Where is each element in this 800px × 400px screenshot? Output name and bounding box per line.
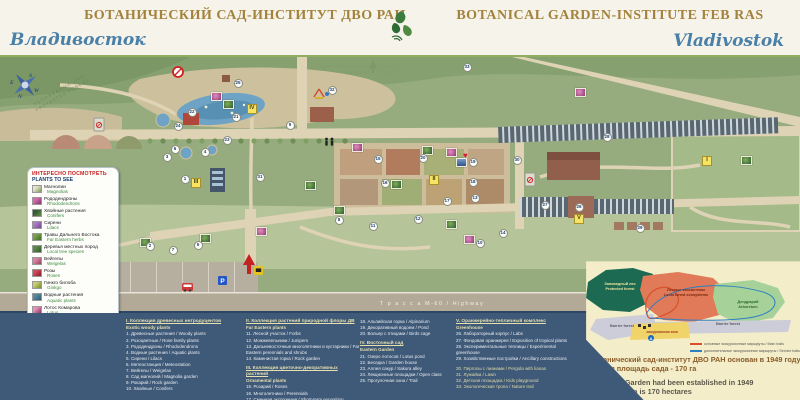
city-script-english: Vladivostok — [673, 31, 784, 51]
legend-header-en: Eastern Garden — [360, 347, 455, 353]
plant-list-item: МагнолииMagnolias — [32, 185, 114, 195]
header: БОТАНИЧЕСКИЙ САД-ИНСТИТУТ ДВО РАН BOTANI… — [0, 0, 800, 57]
brown-building — [310, 107, 334, 122]
service-trail-label: дополнительные экскурсионные маршруты / … — [704, 349, 800, 353]
plant-photo-thumbnail — [32, 293, 42, 301]
legend-column-4: V. Оранжерейно-тепличный комплексGreenho… — [456, 319, 578, 390]
legend-section-header: III. Коллекция цветочно-декоративных рас… — [246, 366, 360, 384]
plant-photo-thumbnail — [32, 257, 42, 265]
small-pond-2 — [180, 147, 192, 159]
svg-text:TRAIL: TRAIL — [379, 70, 395, 75]
legend-header-en: Exotic woody plants — [126, 325, 244, 331]
lab-building — [568, 196, 594, 218]
plant-name-en: Rhododendrons — [47, 202, 80, 207]
plant-labels: Гинкго билобаGinkgo — [44, 281, 76, 291]
plant-labels: Хвойные растенияConifers — [44, 209, 86, 219]
greenhouse-row-east — [590, 199, 674, 214]
small-pond — [156, 113, 170, 127]
highway-label: Т р а с с а М-60 / Highway — [380, 301, 484, 307]
no-entry-icon — [173, 67, 183, 77]
small-pond-3 — [207, 145, 217, 155]
plant-labels: Деревья местных породLocal tree species — [44, 245, 98, 255]
plant-labels: Травы Дальнего ВостокаFar Eastern herbs — [44, 233, 99, 243]
trail-legend-main: основные экскурсионные маршруты / Main t… — [690, 342, 784, 346]
inset-zone-label: Лесные экосистемыLocal forest ecosystems — [664, 288, 708, 297]
plant-list-item: Деревья местных породLocal tree species — [32, 245, 114, 255]
plants-list: МагнолииMagnoliasРододендроныRhododendro… — [32, 185, 114, 315]
svg-text:E: E — [9, 80, 14, 86]
plant-labels: Водные растенияAquatic plants — [44, 293, 83, 303]
plants-to-see-panel: ИНТЕРЕСНО ПОСМОТРЕТЬ PLANTS TO SEE Магно… — [27, 167, 119, 325]
lovers-bridge-heart-icon: ♥ — [463, 151, 468, 160]
plant-list-item: Водные растенияAquatic plants — [32, 293, 114, 303]
legend-item: 20. Вольер с птицами / Birds cage — [360, 331, 455, 337]
plant-labels: РододендроныRhododendrons — [44, 197, 80, 207]
main-trail-swatch — [690, 343, 702, 345]
legend-item: 24. Лекционные площадки / Open class — [360, 372, 455, 378]
legend-item: 27. Фондовая оранжерея / Exposition of t… — [456, 338, 578, 344]
leaf-logo-icon — [388, 9, 414, 50]
legend-item: 14. Каменистая горка / Rock garden — [246, 356, 360, 362]
plant-labels: РозыRoses — [44, 269, 60, 279]
svg-text:ТРОПА: ТРОПА — [379, 64, 398, 69]
inset-zone-label: экскурсионная зона — [646, 331, 678, 335]
plant-list-item: СирениLilacs — [32, 221, 114, 231]
legend-column-1: I. Коллекция древесных интродуцентовExot… — [126, 319, 244, 392]
plant-list-item: ВейгелыWeigelas — [32, 257, 114, 267]
legend-section-header: I. Коллекция древесных интродуцентовExot… — [126, 319, 244, 331]
legend-item: 25. Прогулочная зона / Trail — [360, 378, 455, 384]
atm-map-icon — [254, 266, 263, 275]
plant-labels: СирениLilacs — [44, 221, 61, 231]
plant-labels: ВейгелыWeigelas — [44, 257, 66, 267]
bus-stop-map-icon — [182, 283, 193, 292]
plant-photo-thumbnail — [32, 185, 42, 193]
legend-header-ru: III. Коллекция цветочно-декоративных рас… — [246, 366, 360, 378]
admin-building — [547, 160, 600, 180]
svg-text:S: S — [29, 73, 32, 79]
legend-section-header: IV. Восточный садEastern Garden — [360, 341, 455, 353]
plant-photo-thumbnail — [32, 221, 42, 229]
svg-text:NATURE: NATURE — [346, 70, 368, 75]
hut — [222, 75, 230, 82]
plant-photo-thumbnail — [32, 281, 42, 289]
plant-name-en: Aquatic plants — [47, 299, 83, 304]
plant-photo-thumbnail — [32, 209, 42, 217]
svg-text:ЭКОЛОГИЧЕСКАЯ: ЭКОЛОГИЧЕСКАЯ — [320, 64, 368, 69]
admin-roof — [547, 152, 600, 160]
svg-text:A: A — [650, 336, 653, 341]
legend-item: 13. Дальневосточные многолетники и куста… — [246, 344, 360, 356]
plant-photo-thumbnail — [32, 197, 42, 205]
legend-column-2: II. Коллекция растений природной флоры Д… — [246, 319, 360, 400]
founded-text-ru: Ботанический сад-институт ДВО РАН основа… — [590, 355, 800, 364]
title-english: BOTANICAL GARDEN-INSTITUTE FEB RAS — [425, 8, 795, 24]
legend-item: 29. Хозяйственные постройки / Ancillary … — [456, 356, 578, 362]
legend-item: 17. Сменная экспозиция / Short-term expo… — [246, 397, 360, 400]
legend-section-header: V. Оранжерейно-тепличный комплексGreenho… — [456, 319, 578, 331]
plant-name-en: Roses — [47, 274, 60, 279]
main-trail-label: основные экскурсионные маршруты / Main t… — [704, 342, 784, 346]
trail-legend-service: дополнительные экскурсионные маршруты / … — [690, 349, 800, 353]
plant-name-en: Weigelas — [47, 262, 66, 267]
no-entry-plaque-2 — [525, 173, 535, 186]
legend-section-header: II. Коллекция растений природной флоры Д… — [246, 319, 360, 331]
plant-list-item: Травы Дальнего ВостокаFar Eastern herbs — [32, 233, 114, 243]
plant-name-en: Lilacs — [47, 226, 61, 231]
parking-map-icon: P — [218, 276, 227, 285]
inset-zone-label: Заповедный лесProtected forest — [604, 282, 635, 291]
plant-labels: МагнолииMagnolias — [44, 185, 68, 195]
plant-list-item: РозыRoses — [32, 269, 114, 279]
plant-photo-thumbnail — [32, 233, 42, 241]
plant-name-en: Far Eastern herbs — [47, 238, 99, 243]
inset-zone-label: Barrier forest — [716, 322, 740, 327]
legend-item: 10. Хвойные / Conifers — [126, 386, 244, 392]
plant-name-en: Conifers — [47, 214, 86, 219]
legend-item: 33. Экологическая тропа / Nature trail — [456, 384, 578, 390]
plant-list-item: Гинкго билобаGinkgo — [32, 281, 114, 291]
no-entry-plaque — [94, 118, 104, 131]
flower-beds — [52, 135, 142, 149]
botanical-garden-map-poster: БОТАНИЧЕСКИЙ САД-ИНСТИТУТ ДВО РАН BOTANI… — [0, 0, 800, 400]
city-script-russian: Владивосток — [10, 30, 146, 50]
service-trail-swatch — [690, 350, 702, 352]
plant-photo-thumbnail — [32, 245, 42, 253]
plant-list-item: Хвойные растенияConifers — [32, 209, 114, 219]
east-field — [672, 135, 800, 231]
svg-text:P: P — [220, 278, 225, 285]
greenhouse-27 — [520, 197, 568, 217]
red-building — [183, 113, 199, 125]
legend-column-3: 18. Альпийская горка / Alpinarium19. Дек… — [360, 319, 455, 384]
plant-name-en: Magnolias — [47, 190, 68, 195]
plants-panel-title-en: PLANTS TO SEE — [32, 177, 114, 183]
inset-zone-label: ДендрарийArboretum — [738, 300, 759, 309]
plant-name-en: Local tree species — [47, 250, 98, 255]
plant-list-item: РододендроныRhododendrons — [32, 197, 114, 207]
inset-zone-label: Barrier forest — [610, 324, 634, 329]
plant-name-en: Ginkgo — [47, 286, 76, 291]
plant-photo-thumbnail — [32, 269, 42, 277]
inset-schematic-map: A — [578, 262, 793, 342]
legend-item: 28. Экспериментальные теплицы / Experime… — [456, 344, 578, 356]
